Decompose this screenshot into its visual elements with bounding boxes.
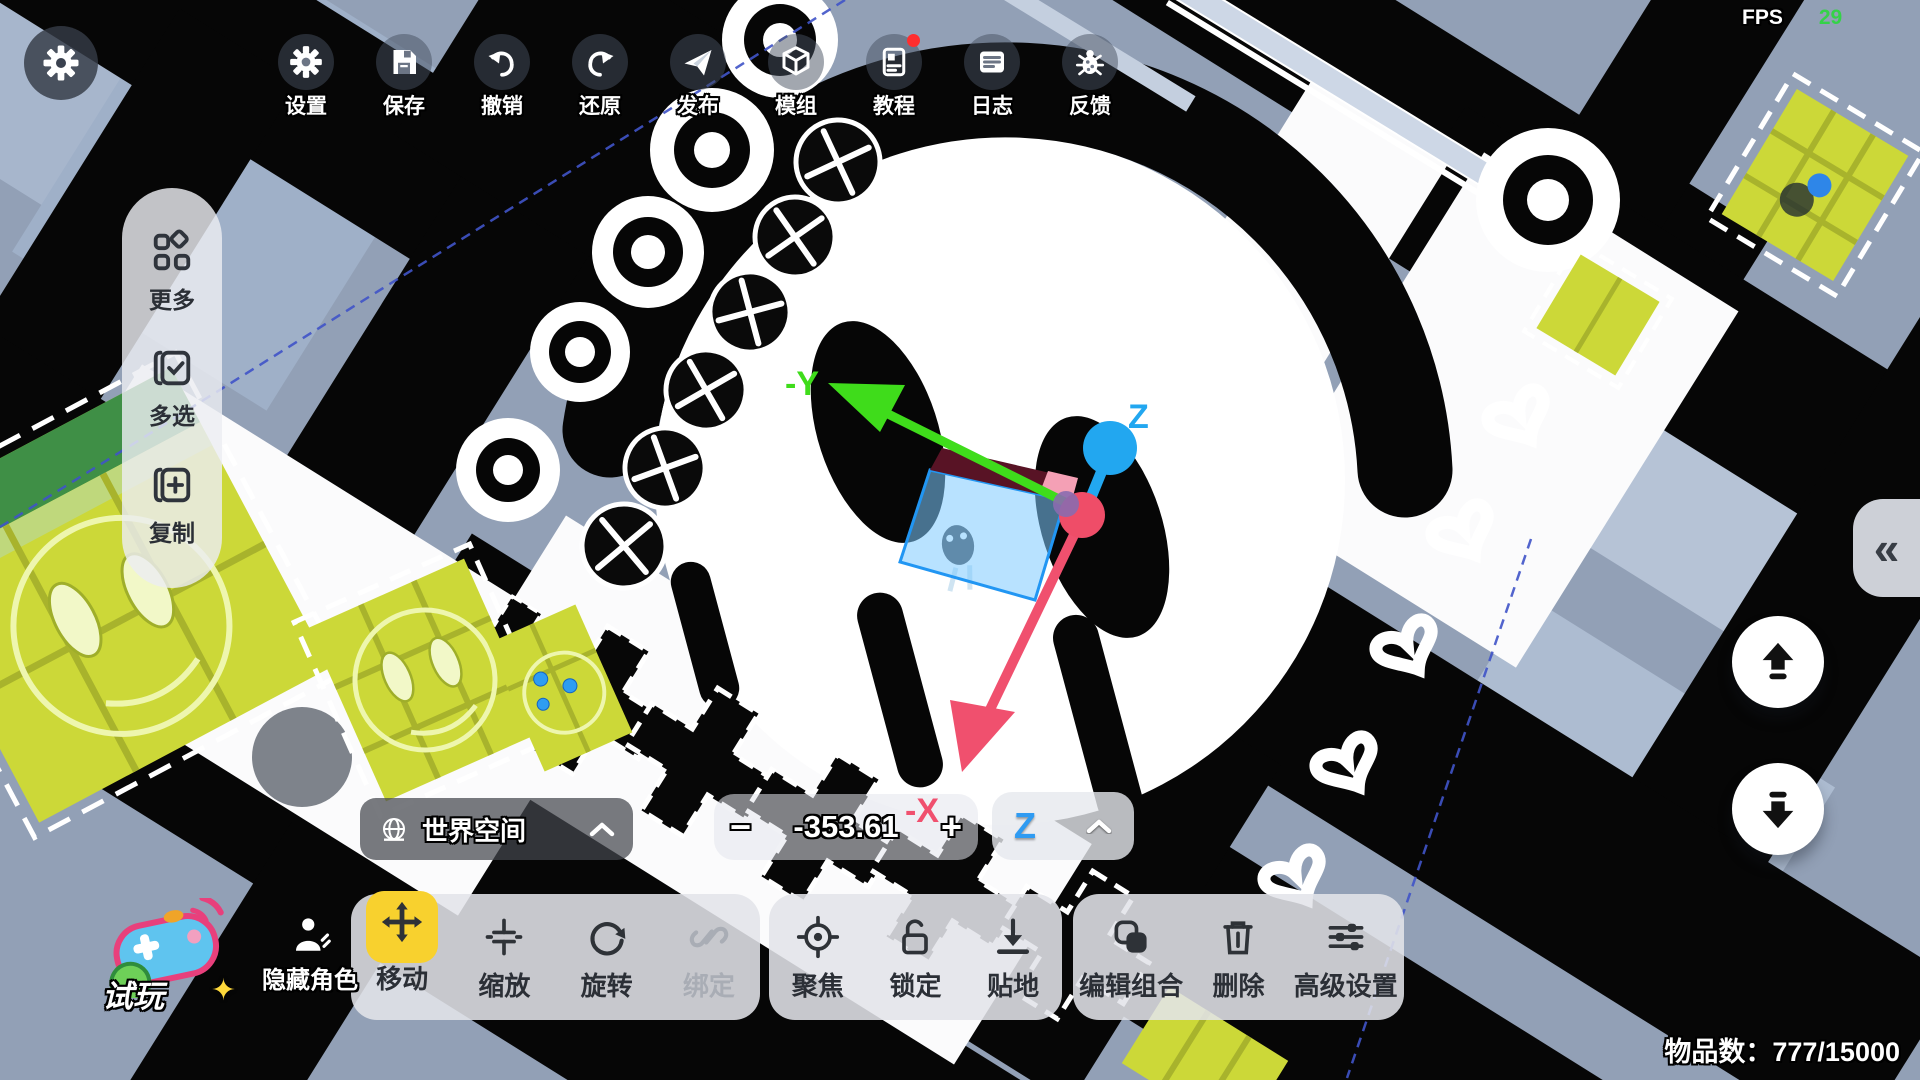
cube-icon: [778, 44, 814, 80]
duplicate-button[interactable]: 复制: [149, 462, 195, 548]
hide-character-button[interactable]: 隐藏角色: [250, 914, 370, 995]
redo-icon: [582, 44, 618, 80]
axis-value[interactable]: -353.61: [793, 809, 898, 845]
book-icon: [876, 44, 912, 80]
undo-icon: [484, 44, 520, 80]
bind-tool-button[interactable]: 绑定: [666, 912, 752, 1003]
toolbar-publish-button[interactable]: 发布: [649, 34, 747, 120]
grid-more-icon: [149, 229, 195, 275]
lock-open-icon: [893, 915, 937, 959]
trash-icon: [1216, 915, 1260, 959]
edit-actions-toolbar: 编辑组合 删除 高级设置: [1073, 894, 1404, 1020]
scale-tool-button[interactable]: 缩放: [461, 912, 547, 1003]
person-icon: [289, 914, 331, 956]
chevron-up-icon: [1086, 818, 1112, 834]
log-icon: [974, 44, 1010, 80]
playtest-label: 试玩: [102, 971, 164, 1016]
arrow-up-from-line-icon: [1755, 639, 1801, 685]
group-icon: [1109, 915, 1153, 959]
collapse-panel-tab[interactable]: «: [1853, 499, 1920, 597]
selection-tools-panel: 更多 多选 复制: [122, 188, 222, 588]
sparkle-icon: ✦: [211, 973, 236, 1008]
link-icon: [687, 915, 731, 959]
notification-badge: [907, 34, 920, 47]
focus-button[interactable]: 聚焦: [775, 912, 861, 1003]
toolbar-log-button[interactable]: 日志: [943, 34, 1041, 120]
advanced-settings-button[interactable]: 高级设置: [1294, 912, 1398, 1003]
snap-to-ground-button[interactable]: 贴地: [970, 912, 1056, 1003]
toolbar-feedback-button[interactable]: 反馈: [1041, 34, 1139, 120]
fps-counter: FPS 29: [1742, 6, 1842, 30]
lower-object-button[interactable]: [1732, 763, 1824, 855]
raise-object-button[interactable]: [1732, 616, 1824, 708]
duplicate-icon: [149, 462, 195, 508]
top-toolbar: 设置 保存 撤销 还原 发布 模组 教程: [257, 34, 1139, 120]
move-tool-button[interactable]: 移动: [359, 919, 445, 996]
increment-button[interactable]: +: [941, 809, 962, 845]
rotate-icon: [585, 915, 629, 959]
toolbar-redo-button[interactable]: 还原: [551, 34, 649, 120]
arrow-down-from-line-icon: [1755, 786, 1801, 832]
sliders-icon: [1324, 915, 1368, 959]
toolbar-settings-button[interactable]: 设置: [257, 34, 355, 120]
chevrons-left-icon: «: [1874, 521, 1900, 575]
focus-icon: [796, 915, 840, 959]
snap-ground-icon: [991, 915, 1035, 959]
save-icon: [386, 44, 422, 80]
lock-button[interactable]: 锁定: [872, 912, 958, 1003]
globe-icon: [378, 813, 410, 845]
chevron-up-icon: [589, 821, 615, 837]
gray-sphere[interactable]: [252, 707, 352, 807]
more-tools-button[interactable]: 更多: [149, 229, 195, 315]
hide-character-label: 隐藏角色: [262, 960, 358, 995]
scale-icon: [482, 915, 526, 959]
editor-stage: -Y -X Z: [0, 0, 1920, 1080]
edit-group-button[interactable]: 编辑组合: [1079, 912, 1183, 1003]
gear-icon: [287, 43, 325, 81]
axis-dropdown[interactable]: Z: [992, 792, 1134, 860]
toolbar-tutorial-button[interactable]: 教程: [845, 34, 943, 120]
axis-dropdown-value: Z: [1014, 805, 1036, 847]
decrement-button[interactable]: −: [730, 809, 751, 845]
axis-value-stepper: − -353.61 +: [714, 794, 978, 860]
transform-mode-toolbar: 移动 缩放 旋转 绑定: [351, 894, 760, 1020]
paper-plane-icon: [680, 44, 716, 80]
item-count: 物品数：777/15000: [1580, 1030, 1900, 1069]
toolbar-undo-button[interactable]: 撤销: [453, 34, 551, 120]
move-icon: [379, 899, 425, 945]
object-actions-toolbar: 聚焦 锁定 贴地: [769, 894, 1062, 1020]
settings-fab-button[interactable]: [24, 26, 98, 100]
fps-label: FPS: [1742, 6, 1783, 30]
item-count-label: 物品数：: [1664, 1037, 1772, 1067]
coordinate-space-label: 世界空间: [422, 811, 526, 848]
fps-value: 29: [1819, 6, 1842, 30]
bug-icon: [1072, 44, 1108, 80]
gear-icon: [41, 43, 81, 83]
multi-select-icon: [149, 345, 195, 391]
delete-button[interactable]: 删除: [1195, 912, 1281, 1003]
playtest-button[interactable]: 试玩 ✦: [94, 898, 254, 1018]
multi-select-button[interactable]: 多选: [149, 345, 195, 431]
toolbar-save-button[interactable]: 保存: [355, 34, 453, 120]
item-count-value: 777/15000: [1772, 1037, 1900, 1067]
coordinate-space-selector[interactable]: 世界空间: [360, 798, 633, 860]
toolbar-module-button[interactable]: 模组: [747, 34, 845, 120]
rotate-tool-button[interactable]: 旋转: [564, 912, 650, 1003]
